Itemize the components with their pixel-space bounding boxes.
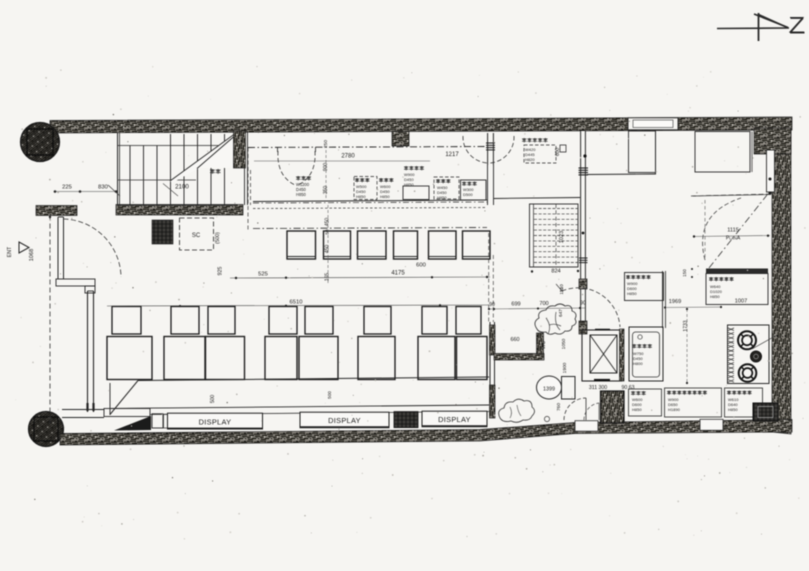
svg-text:1900: 1900: [562, 362, 568, 373]
svg-text:H850: H850: [632, 407, 642, 412]
svg-text:311 300: 311 300: [589, 385, 607, 391]
svg-text:660: 660: [511, 337, 520, 343]
svg-text:1007: 1007: [735, 299, 747, 305]
svg-text:H850: H850: [296, 192, 307, 197]
svg-text:6510: 6510: [290, 300, 303, 306]
svg-text:SC: SC: [192, 233, 201, 239]
svg-text:760: 760: [556, 403, 562, 411]
svg-text:2100: 2100: [175, 184, 189, 191]
svg-text:1115: 1115: [727, 228, 739, 234]
svg-text:D500: D500: [463, 192, 473, 197]
svg-text:925: 925: [218, 267, 224, 276]
svg-text:1399: 1399: [543, 387, 555, 393]
svg-text:DISPLAY: DISPLAY: [199, 417, 232, 426]
svg-text:700: 700: [539, 301, 548, 307]
svg-text:H820: H820: [525, 157, 535, 162]
svg-text:H850: H850: [356, 194, 366, 199]
svg-text:824: 824: [551, 269, 560, 275]
svg-text:225: 225: [62, 185, 72, 191]
svg-text:450: 450: [325, 245, 331, 254]
svg-text:165: 165: [325, 273, 331, 282]
svg-text:DISPLAY: DISPLAY: [438, 415, 471, 424]
svg-text:525: 525: [258, 272, 268, 278]
svg-text:150: 150: [682, 269, 687, 277]
svg-text:WC: WC: [541, 340, 547, 349]
svg-text:1217: 1217: [445, 152, 459, 158]
svg-text:647: 647: [558, 309, 563, 317]
svg-text:50: 50: [325, 229, 330, 235]
svg-text:1733: 1733: [683, 320, 689, 331]
svg-text:1969: 1969: [669, 299, 681, 305]
svg-text:699: 699: [511, 302, 520, 308]
svg-text:H1890: H1890: [668, 407, 681, 412]
svg-text:90 63: 90 63: [622, 385, 635, 391]
svg-text:H850: H850: [380, 194, 390, 199]
svg-text:H850: H850: [728, 407, 738, 412]
svg-text:450: 450: [325, 218, 331, 227]
svg-text:H850: H850: [710, 294, 720, 299]
svg-text:500: 500: [327, 391, 332, 399]
svg-text:1023: 1023: [559, 231, 565, 243]
svg-text:830: 830: [98, 185, 108, 191]
svg-text:90: 90: [489, 302, 495, 308]
svg-text:ENT: ENT: [7, 246, 13, 257]
svg-text:250: 250: [323, 140, 329, 148]
svg-text:H850: H850: [627, 291, 637, 296]
svg-text:2780: 2780: [341, 154, 355, 160]
svg-text:1068: 1068: [29, 249, 35, 261]
svg-text:90: 90: [580, 301, 586, 307]
svg-text:DISPLAY: DISPLAY: [328, 416, 361, 425]
svg-text:4175: 4175: [391, 271, 405, 277]
svg-text:H850: H850: [437, 195, 447, 200]
svg-text:PLANA: PLANA: [726, 236, 741, 242]
svg-text:1050: 1050: [561, 338, 567, 349]
svg-text:(500): (500): [215, 232, 221, 244]
svg-text:H800: H800: [633, 361, 643, 366]
svg-text:500: 500: [210, 395, 216, 404]
svg-text:600: 600: [416, 263, 426, 269]
